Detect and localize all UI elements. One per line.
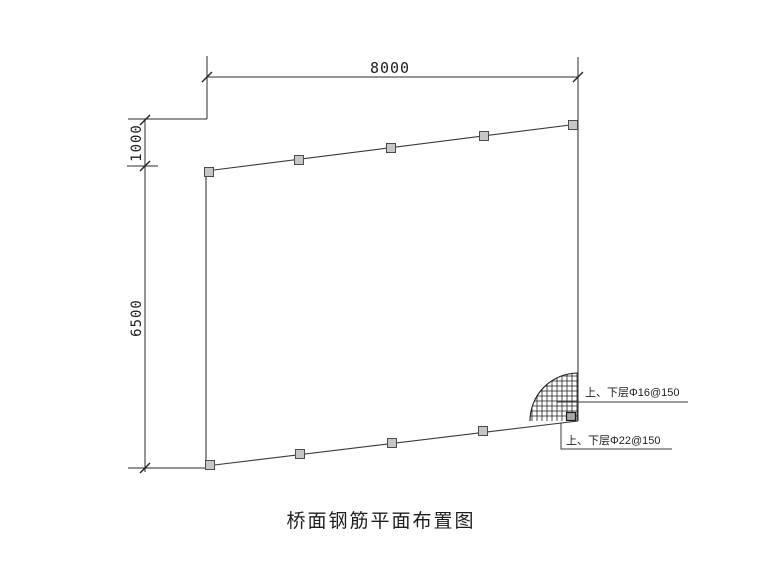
marker-square [569,121,578,130]
marker-square [387,144,396,153]
plan-drawing-svg: 8000 1000 6500 上、下层Φ16@150 上、下层Φ22@150 桥… [0,0,760,569]
marker-square [479,427,488,436]
marker-square [206,461,215,470]
corner-marker-square [567,413,576,421]
dimension-lines [127,56,578,472]
marker-square [388,439,397,448]
marker-square [295,156,304,165]
dimension-text-top-width: 8000 [370,59,410,77]
dimension-text-left-lower: 6500 [129,299,145,337]
rebar-hatch-zone [528,370,579,423]
top-edge-marker-squares [205,121,578,177]
bridge-deck-rebar-plan-drawing: 8000 1000 6500 上、下层Φ16@150 上、下层Φ22@150 桥… [0,0,760,569]
annotation-rebar-22: 上、下层Φ22@150 [566,434,661,447]
dimension-text-left-upper: 1000 [129,124,145,162]
drawing-title: 桥面钢筋平面布置图 [286,510,475,532]
slab-outline [206,124,578,466]
bottom-edge-marker-squares [206,427,488,470]
marker-square [480,132,489,141]
annotation-rebar-16: 上、下层Φ16@150 [585,386,680,399]
marker-square [205,168,214,177]
marker-square [296,450,305,459]
